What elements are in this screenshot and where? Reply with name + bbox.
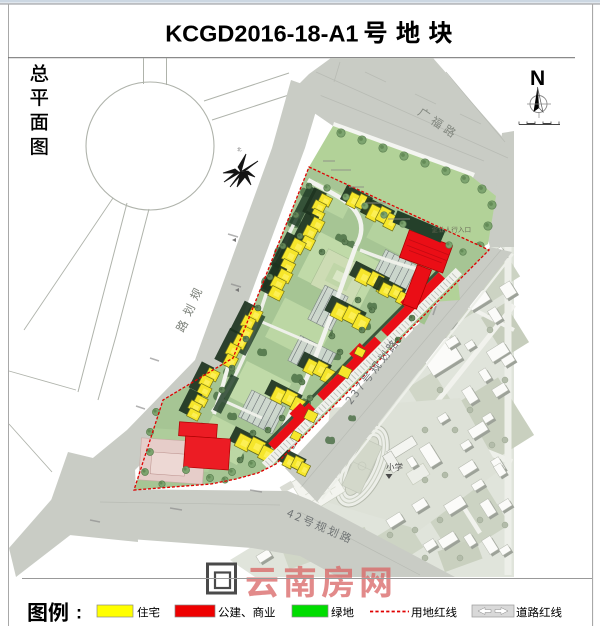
svg-text::: : bbox=[76, 603, 82, 623]
svg-text:N: N bbox=[530, 67, 545, 90]
svg-text:KCGD2016-18-A1: KCGD2016-18-A1 bbox=[165, 21, 358, 47]
